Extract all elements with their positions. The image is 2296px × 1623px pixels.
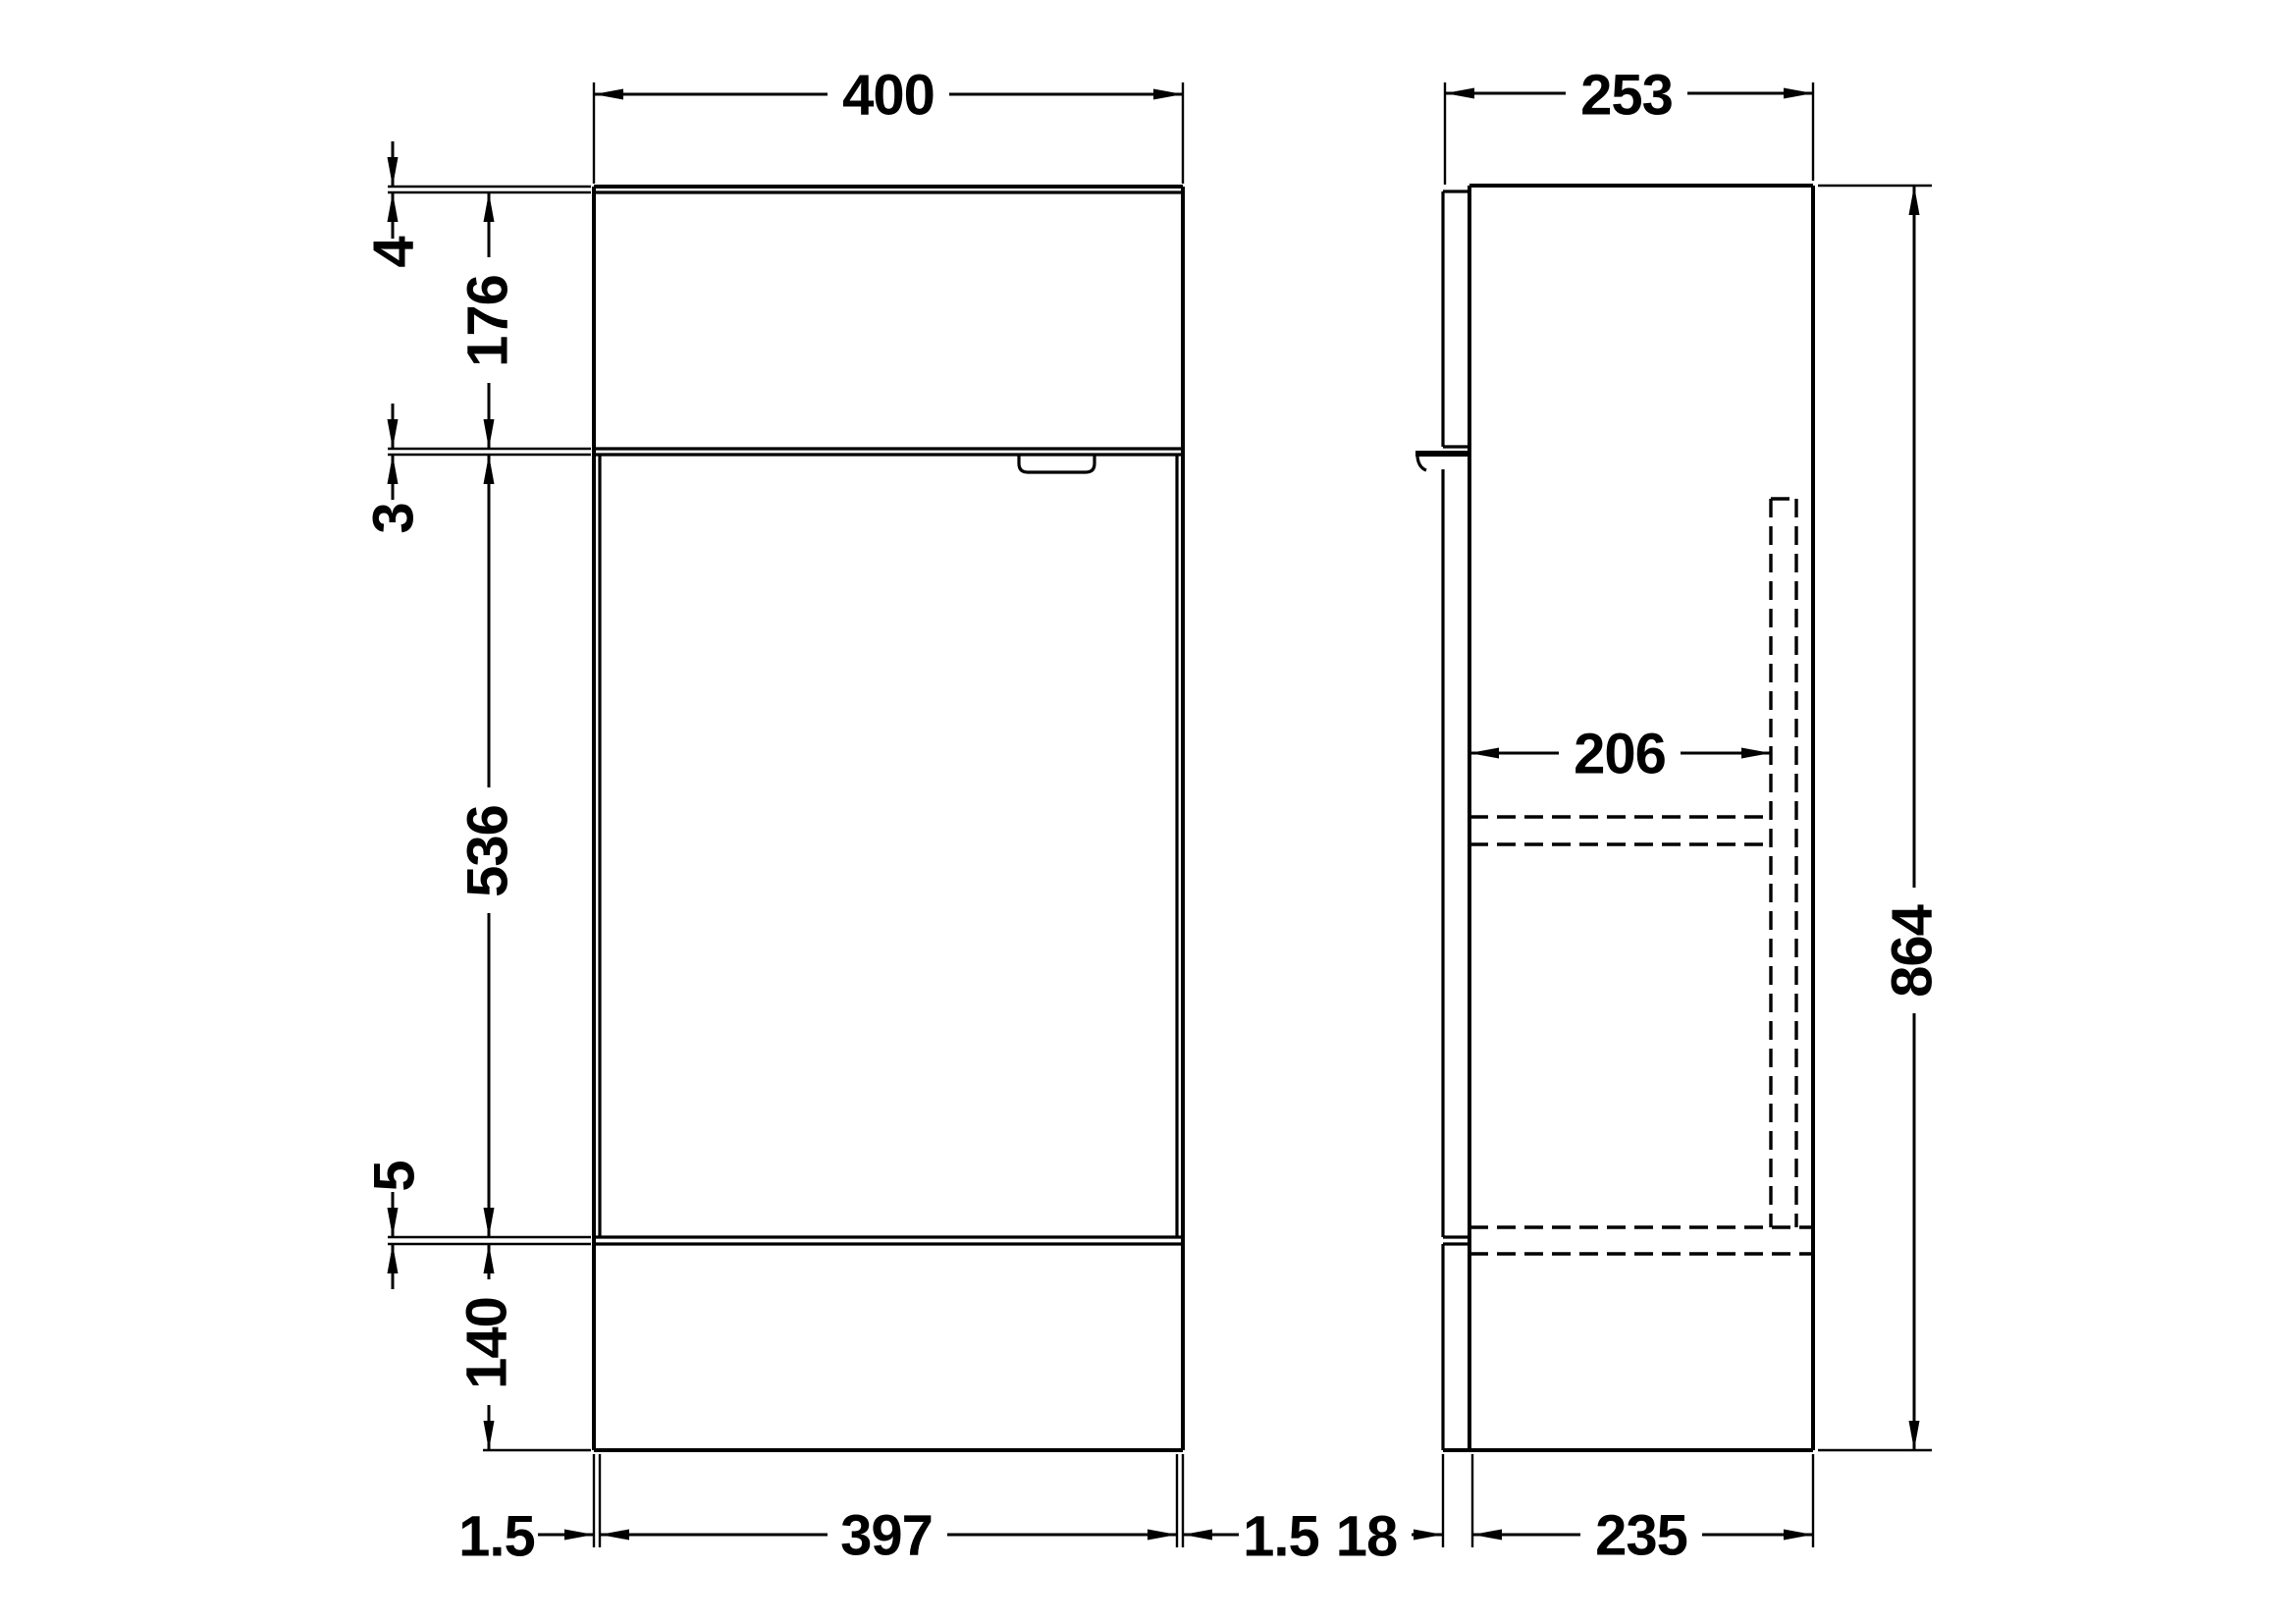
dim-internal-depth: 206 [1469,723,1771,786]
dim-overall-height: 864 [1881,186,1945,1450]
technical-drawing-page: 400 4 176 3 536 5 [0,0,2296,1623]
dim-label-door-width: 397 [840,1504,933,1568]
dim-plinth-height: 140 [455,1244,519,1450]
dim-label-overall-depth: 253 [1580,64,1673,128]
door-handle-recess [1019,455,1095,472]
dim-label-internal-depth: 206 [1574,723,1666,786]
dim-label-right-gap: 1.5 [1243,1505,1319,1569]
front-view: 400 4 176 3 536 5 [362,64,1319,1569]
dim-upper-panel-height: 176 [456,192,520,449]
side-hidden-lines [1469,499,1813,1254]
dim-label-carcass-depth: 235 [1595,1504,1687,1568]
dim-upper-gap: 3 [362,404,426,534]
dim-label-worktop-thickness: 4 [362,237,426,268]
dim-label-front-panel-thickness: 18 [1336,1505,1398,1569]
dim-carcass-depth: 235 [1472,1504,1813,1568]
dim-door-width: 397 [600,1504,1177,1568]
dim-door-height: 536 [456,455,520,1237]
dim-left-gap: 1.5 [458,1505,594,1569]
dim-label-left-gap: 1.5 [458,1505,535,1569]
dim-label-door-height: 536 [456,805,520,897]
dim-label-overall-height: 864 [1881,904,1945,998]
front-cabinet-outline [594,187,1183,1450]
dim-front-panel-thickness: 18 [1336,1505,1443,1569]
dim-label-lower-gap: 5 [363,1161,427,1191]
dim-label-overall-width: 400 [842,64,934,128]
dim-overall-depth: 253 [1445,64,1813,128]
wc-unit-dimension-drawing: 400 4 176 3 536 5 [0,0,2296,1623]
side-view: 253 206 864 18 235 [1336,64,1945,1569]
dim-worktop-thickness: 4 [362,141,426,268]
side-extension-lines [1443,82,1932,1547]
dim-overall-width: 400 [594,64,1183,128]
side-front-panels [1415,191,1469,1450]
dim-label-upper-panel-height: 176 [456,275,520,367]
side-handle-lip-curve [1417,457,1426,470]
dim-lower-gap: 5 [363,1161,427,1289]
dim-label-upper-gap: 3 [362,503,426,533]
dim-label-plinth-height: 140 [455,1297,519,1389]
dim-right-gap: 1.5 [1183,1505,1319,1569]
